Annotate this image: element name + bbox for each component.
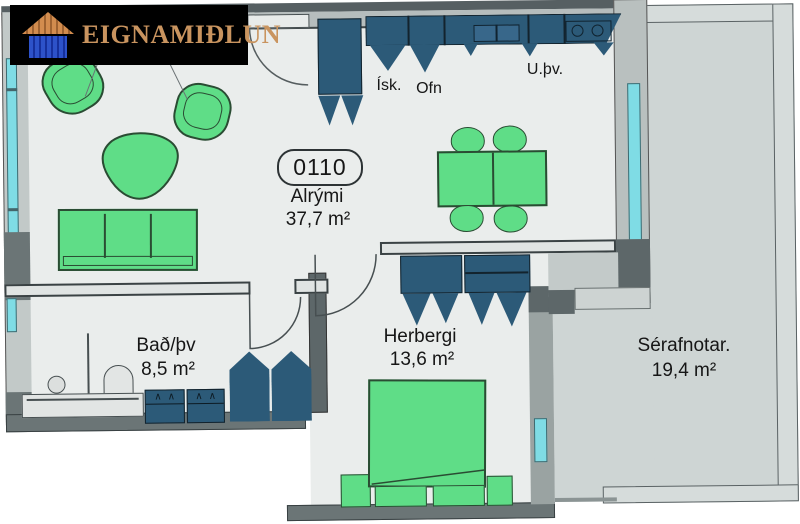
room-area-bad: 8,5 m² xyxy=(106,359,230,381)
floorplan-canvas: ∧∧ ∧∧ 0110 Alrými 37,7 m² Ísk. Ofn U.þv.… xyxy=(0,0,800,524)
house-icon xyxy=(22,10,74,60)
unit-number-badge: 0110 xyxy=(277,149,363,186)
label-oven: Ofn xyxy=(406,80,452,98)
room-name-alrymi: Alrými xyxy=(257,186,377,208)
room-area-serafnotar: 19,4 m² xyxy=(620,360,748,382)
house-body-icon xyxy=(29,36,67,58)
house-roof-icon xyxy=(22,12,74,34)
room-name-serafnotar: Sérafnotar. xyxy=(620,335,748,357)
room-area-alrymi: 37,7 m² xyxy=(255,209,381,231)
room-area-herbergi: 13,6 m² xyxy=(360,349,484,371)
labels-layer: 0110 Alrými 37,7 m² Ísk. Ofn U.þv. Bað/þ… xyxy=(0,0,800,524)
label-dishwasher: U.þv. xyxy=(514,61,576,79)
room-name-herbergi: Herbergi xyxy=(360,326,480,348)
agency-logo-text: EIGNAMIÐLUN xyxy=(82,20,281,50)
agency-logo: EIGNAMIÐLUN xyxy=(10,5,248,65)
room-name-bad: Bað/þv xyxy=(106,335,226,357)
